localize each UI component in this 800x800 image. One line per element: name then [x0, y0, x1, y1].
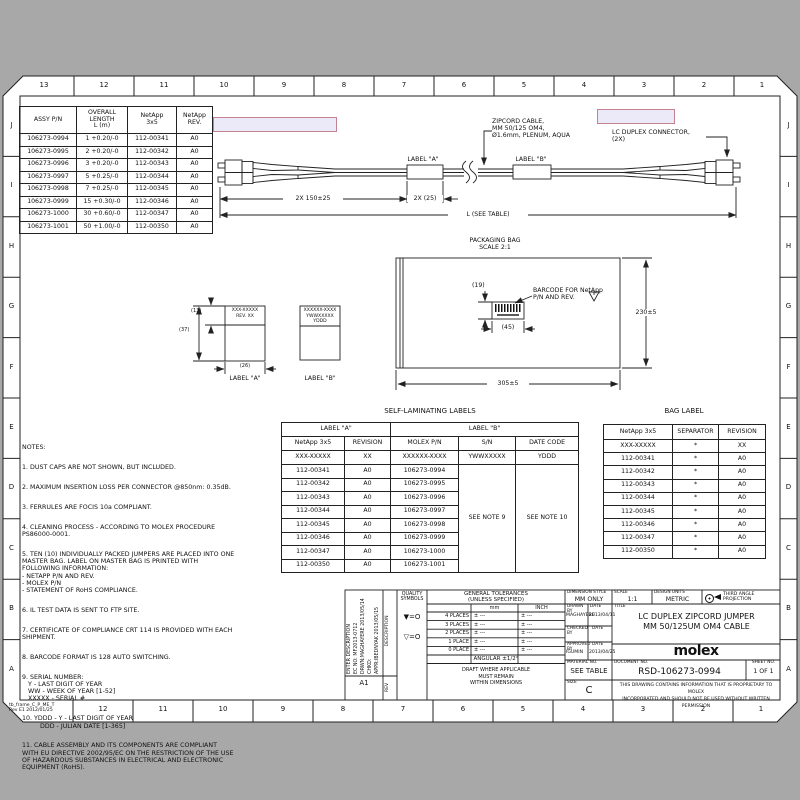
design-units-value: METRIC: [653, 596, 702, 603]
table-row: 112-00343*A0: [604, 479, 766, 492]
cell: 112-00343: [282, 492, 345, 506]
note-item: 7. CERTIFICATE OF COMPLIANCE CRT 114 IS …: [22, 627, 290, 641]
cell: 106273-1001: [391, 559, 459, 573]
table-row: 106273-09941 +0.20/-0112-00341A0: [20, 134, 213, 147]
label-a-caption: LABEL "A": [222, 375, 268, 382]
cell: 112-00342: [282, 478, 345, 492]
cell: A0: [719, 545, 766, 558]
cell: 112-00347: [604, 532, 673, 545]
border-row: I: [781, 156, 796, 216]
quality-symbols-label: QUALITY SYMBOLS: [397, 592, 427, 603]
table-row: 106273-09963 +0.20/-0112-00343A0: [20, 159, 213, 172]
notes-title: NOTES:: [22, 444, 290, 451]
assy-table: ASSY P/N OVERALL LENGTH L (m) NetApp 3x5…: [19, 106, 213, 234]
zipcord-cable-callout: ZIPCORD CABLE, MM 50/125 OM4, Ø1.6mm, PL…: [492, 118, 588, 139]
table-row: 112-00350*A0: [604, 545, 766, 558]
engineering-drawing-sheet: 13 12 11 10 9 8 7 6 5 4 3 2 1 12 11 10 9…: [0, 0, 800, 800]
group-header: LABEL "B": [391, 423, 579, 437]
table-row: 106273-09987 +0.25/-0112-00345A0: [20, 184, 213, 197]
cell: *: [673, 466, 719, 479]
border-row: E: [781, 398, 796, 458]
table-row: 106273-099915 +0.30/-0112-00346A0: [20, 196, 213, 209]
cell: A0: [177, 221, 213, 234]
molex-logo: molex: [612, 644, 780, 660]
tol-col-inch: INCH: [519, 606, 564, 612]
cell: A0: [345, 546, 391, 560]
cell: *: [673, 479, 719, 492]
table-row: 106273-09975 +0.25/-0112-00344A0: [20, 171, 213, 184]
col-header: ASSY P/N: [20, 107, 77, 134]
cell: 106273-1001: [20, 221, 77, 234]
table-row: 112-00347*A0: [604, 532, 766, 545]
title-label: TITLE: [614, 605, 644, 610]
tol-mm-value: ± ---: [474, 631, 517, 637]
border-row: I: [4, 156, 19, 216]
tol-mm-value: ± ---: [474, 614, 517, 620]
label-a-callout: LABEL "A": [400, 156, 446, 163]
cell: 5 +0.25/-0: [77, 171, 128, 184]
drawn-by-value: MAGHAYERE: [566, 613, 589, 618]
border-row: G: [4, 277, 19, 337]
cell: A0: [719, 466, 766, 479]
tol-inch-value: ± ---: [521, 614, 564, 620]
sheet-no-value: 1 OF 1: [747, 668, 780, 675]
table-row: 112-00346*A0: [604, 519, 766, 532]
table-row: 112-00341*A0: [604, 453, 766, 466]
border-col: 7: [373, 702, 433, 718]
quality-symbol-major: ▽=O: [397, 634, 427, 642]
cell: 112-00345: [128, 184, 177, 197]
approved-by-value: IGUMIN: [566, 650, 589, 655]
cell: 112-00345: [604, 505, 673, 518]
col-header: MOLEX P/N: [391, 437, 459, 451]
table-row: XXX-XXXXX*XX: [604, 440, 766, 453]
border-col: 1: [734, 78, 790, 94]
note-item: 10. YDDD - Y - LAST DIGIT OF YEAR DDD - …: [22, 715, 290, 729]
material-no-label: MATERIAL NO.: [567, 661, 611, 666]
col-header: REVISION: [345, 437, 391, 451]
label-b-content: XXXXXX-XXXX YWWXXXXX YDDD: [300, 308, 340, 325]
dim-barcode-width: (45): [495, 324, 521, 331]
table-row: 112-00342*A0: [604, 466, 766, 479]
cell: 106273-0999: [391, 532, 459, 546]
col-header: NetApp 3x5: [604, 425, 673, 440]
cell: A0: [177, 134, 213, 147]
cell: A0: [345, 519, 391, 533]
tol-mm-value: ± ---: [474, 623, 517, 629]
scale-value: 1:1: [613, 596, 652, 603]
border-row: B: [4, 579, 19, 639]
dim-13: (13): [191, 309, 209, 315]
border-row: E: [4, 398, 19, 458]
border-col: 6: [434, 78, 494, 94]
table-row: 106273-100030 +0.60/-0112-00347A0: [20, 209, 213, 222]
dim-37: (37): [179, 328, 197, 334]
tol-inch-value: ± ---: [521, 631, 564, 637]
note-item: 2. MAXIMUM INSERTION LOSS PER CONNECTOR …: [22, 484, 290, 491]
document-no-value: RSD-106273-0994: [613, 667, 746, 677]
cell: A0: [719, 532, 766, 545]
border-row: C: [781, 519, 796, 579]
cell: 106273-1000: [391, 546, 459, 560]
cell: 106273-0996: [391, 492, 459, 506]
cell: A0: [719, 492, 766, 505]
cell: 112-00343: [604, 479, 673, 492]
tolerances-title: GENERAL TOLERANCES (UNLESS SPECIFIED): [428, 591, 564, 604]
document-no-label: DOCUMENT NO.: [614, 661, 654, 666]
table-row: 106273-100150 +1.00/-0112-00350A0: [20, 221, 213, 234]
cell: A0: [177, 171, 213, 184]
dim-boot-length: 2X 150±25: [283, 195, 343, 202]
note-item: 8. BARCODE FORMAT IS 128 AUTO SWITCHING.: [22, 654, 290, 661]
cell: 112-00346: [128, 196, 177, 209]
border-col: 11: [134, 78, 194, 94]
tol-row-label: 0 PLACE: [427, 648, 469, 654]
border-col: 12: [74, 78, 134, 94]
cell: A0: [719, 453, 766, 466]
cell: 112-00342: [604, 466, 673, 479]
cell: 15 +0.30/-0: [77, 196, 128, 209]
cell: 106273-0994: [391, 465, 459, 479]
dimension-style-value: MM ONLY: [566, 596, 612, 603]
material-no-value: SEE TABLE: [566, 668, 612, 676]
tol-mm-value: ± ---: [474, 640, 517, 646]
cell: XXX-XXXXX: [282, 451, 345, 465]
border-row: B: [781, 579, 796, 639]
table-row: 112-00344*A0: [604, 492, 766, 505]
cell: 112-00341: [282, 465, 345, 479]
cell: 112-00342: [128, 146, 177, 159]
drawing-title: LC DUPLEX ZIPCORD JUMPER MM 50/125UM OM4…: [613, 612, 780, 632]
cell: YDDD: [516, 451, 579, 465]
cell: YWWXXXXX: [459, 451, 516, 465]
cell: 112-00350: [128, 221, 177, 234]
cell: XXXXXX-XXXX: [391, 451, 459, 465]
cell: A0: [177, 159, 213, 172]
col-header: REVISION: [719, 425, 766, 440]
cell: 112-00341: [604, 453, 673, 466]
col-header: OVERALL LENGTH L (m): [77, 107, 128, 134]
notes-block: NOTES: 1. DUST CAPS ARE NOT SHOWN, BUT I…: [22, 437, 290, 784]
table-row: 106273-09952 +0.20/-0112-00342A0: [20, 146, 213, 159]
highlight-annotation: [213, 117, 337, 132]
projection-cone-icon: [714, 594, 721, 600]
cell: 106273-0997: [391, 505, 459, 519]
note-item: 4. CLEANING PROCESS - ACCORDING TO MOLEX…: [22, 524, 290, 538]
tol-angular: ANGULAR ±1/2°: [428, 656, 564, 662]
flag-note-icon: V: [590, 292, 598, 297]
group-header: LABEL "A": [282, 423, 391, 437]
tol-draft-note: DRAFT WHERE APPLICABLE MUST REMAIN WITHI…: [428, 667, 564, 687]
dim-bag-width: 305±5: [487, 380, 529, 387]
col-header: NetApp 3x5: [128, 107, 177, 134]
cell: A0: [177, 184, 213, 197]
dim-barcode-height: (19): [472, 282, 494, 289]
cell: *: [673, 545, 719, 558]
sheet-no-label: SHEET NO.: [747, 661, 780, 666]
cell: 106273-0995: [20, 146, 77, 159]
cell: 112-00344: [282, 505, 345, 519]
border-row: J: [4, 96, 19, 156]
border-row: C: [4, 519, 19, 579]
cell: A0: [177, 196, 213, 209]
cell: A0: [345, 492, 391, 506]
tol-row-label: 2 PLACES: [427, 631, 469, 637]
border-col: 4: [554, 78, 614, 94]
cell: 106273-0995: [391, 478, 459, 492]
size-value: C: [566, 685, 612, 696]
col-header: NetApp REV.: [177, 107, 213, 134]
label-a-content: XXX-XXXXX REV. XX: [225, 308, 265, 320]
dim-26: (26): [228, 364, 262, 370]
cell: 50 +1.00/-0: [77, 221, 128, 234]
note-item: 1. DUST CAPS ARE NOT SHOWN, BUT INCLUDED…: [22, 464, 290, 471]
cell: 30 +0.60/-0: [77, 209, 128, 222]
cell: 112-00346: [282, 532, 345, 546]
col-header: NetApp 3x5: [282, 437, 345, 451]
date-label: DATE: [592, 627, 611, 632]
selflam-table: LABEL "A" LABEL "B" NetApp 3x5 REVISION …: [281, 422, 579, 573]
projection-label: THIRD ANGLE PROJECTION: [723, 592, 779, 603]
border-row: D: [4, 458, 19, 518]
border-row: F: [781, 338, 796, 398]
tol-col-mm: mm: [472, 606, 517, 612]
label-b-caption: LABEL "B": [297, 375, 343, 382]
border-col: 6: [433, 702, 493, 718]
label-b-callout: LABEL "B": [508, 156, 554, 163]
border-row: H: [781, 217, 796, 277]
cell: 106273-1000: [20, 209, 77, 222]
cell: A0: [345, 505, 391, 519]
border-row: J: [781, 96, 796, 156]
quality-symbol-critical: ▼=O: [397, 614, 427, 622]
cell: 112-00344: [604, 492, 673, 505]
cell: A0: [719, 479, 766, 492]
barcode: [495, 304, 521, 312]
rev-label: REV: [385, 678, 397, 697]
date-note-cell: SEE NOTE 10: [516, 465, 579, 573]
border-col: 3: [614, 78, 674, 94]
cell: 112-00350: [282, 559, 345, 573]
cell: 3 +0.20/-0: [77, 159, 128, 172]
cell: 112-00347: [282, 546, 345, 560]
cell: 106273-0998: [20, 184, 77, 197]
border-row: A: [4, 640, 19, 700]
cell: 112-00341: [128, 134, 177, 147]
dim-label-offset: 2X (25): [407, 195, 443, 202]
border-col: 13: [14, 78, 74, 94]
cell: *: [673, 440, 719, 453]
description-label: DESCRIPTION: [385, 592, 397, 670]
border-col: 2: [674, 78, 734, 94]
approved-date: 2013/04/25: [589, 650, 612, 655]
note-item: 5. TEN (10) INDIVIDUALLY PACKED JUMPERS …: [22, 551, 290, 594]
packaging-bag-title: PACKAGING BAG SCALE 2:1: [445, 237, 545, 251]
cell: 112-00344: [128, 171, 177, 184]
border-col: 5: [494, 78, 554, 94]
cell: *: [673, 453, 719, 466]
lc-connector-callout: LC DUPLEX CONNECTOR, (2X): [612, 129, 712, 143]
border-col: 9: [254, 78, 314, 94]
baglabel-title: BAG LABEL: [652, 408, 716, 416]
cell: 106273-0997: [20, 171, 77, 184]
border-col: 4: [553, 702, 613, 718]
cell: 1 +0.20/-0: [77, 134, 128, 147]
cell: 112-00347: [128, 209, 177, 222]
cell: *: [673, 519, 719, 532]
highlight-annotation: [597, 109, 675, 124]
cell: A0: [345, 532, 391, 546]
date-label: DATE: [592, 643, 611, 648]
border-col: 10: [194, 78, 254, 94]
revision-description: ENTER DESCRIPTION EC NO: MF2013-0712 DRW…: [346, 592, 382, 674]
tol-mm-value: ± ---: [474, 648, 517, 654]
note-item: 9. SERIAL NUMBER: Y - LAST DIGIT OF YEAR…: [22, 674, 290, 703]
dim-overall-length: L (SEE TABLE): [448, 211, 528, 218]
cell: 112-00345: [282, 519, 345, 533]
table-row: XXX-XXXXX XX XXXXXX-XXXX YWWXXXXX YDDD: [282, 451, 579, 465]
table-row: 112-00341 A0 106273-0994 SEE NOTE 9 SEE …: [282, 465, 579, 479]
border-row: H: [4, 217, 19, 277]
projection-circle-icon: [705, 594, 714, 603]
cell: 7 +0.25/-0: [77, 184, 128, 197]
border-row: F: [4, 338, 19, 398]
col-header: S/N: [459, 437, 516, 451]
cell: A0: [345, 478, 391, 492]
cell: XX: [719, 440, 766, 453]
drawn-date: 2013/04/11: [589, 613, 612, 618]
note-item: 3. FERRULES ARE FOCIS 10a COMPLIANT.: [22, 504, 290, 511]
cell: 106273-0999: [20, 196, 77, 209]
cell: 106273-0994: [20, 134, 77, 147]
revision-code: A1: [346, 680, 382, 688]
baglabel-table: NetApp 3x5 SEPARATOR REVISION XXX-XXXXX*…: [603, 424, 766, 559]
border-col: 8: [314, 78, 374, 94]
cell: A0: [177, 146, 213, 159]
checked-by-label: CHECKED BY: [567, 627, 591, 637]
border-col: 5: [493, 702, 553, 718]
cell: 112-00346: [604, 519, 673, 532]
col-header: DATE CODE: [516, 437, 579, 451]
cell: XX: [345, 451, 391, 465]
col-header: SEPARATOR: [673, 425, 719, 440]
cell: XXX-XXXXX: [604, 440, 673, 453]
tol-row-label: 1 PLACE: [427, 640, 469, 646]
barcode-callout: BARCODE FOR NetApp P/N AND REV.: [533, 287, 619, 301]
tol-row-label: 3 PLACES: [427, 623, 469, 629]
cell: *: [673, 505, 719, 518]
border-row: D: [781, 458, 796, 518]
cell: A0: [177, 209, 213, 222]
border-col: 7: [374, 78, 434, 94]
date-label: DATE: [590, 605, 611, 610]
sn-note-cell: SEE NOTE 9: [459, 465, 516, 573]
selflam-title: SELF-LAMINATING LABELS: [360, 408, 500, 416]
cell: A0: [345, 465, 391, 479]
border-col: 8: [313, 702, 373, 718]
border-row: A: [781, 640, 796, 700]
table-row: 112-00345*A0: [604, 505, 766, 518]
tol-inch-value: ± ---: [521, 640, 564, 646]
cell: *: [673, 532, 719, 545]
tol-row-label: 4 PLACES: [427, 614, 469, 620]
dim-bag-height: 230±5: [629, 309, 663, 316]
proprietary-notice: THIS DRAWING CONTAINS INFORMATION THAT I…: [612, 682, 780, 710]
cell: *: [673, 492, 719, 505]
border-row: G: [781, 277, 796, 337]
cell: 2 +0.20/-0: [77, 146, 128, 159]
note-item: 6. IL TEST DATA IS SENT TO FTP SITE.: [22, 607, 290, 614]
cell: A0: [719, 519, 766, 532]
cell: 106273-0996: [20, 159, 77, 172]
cell: 106273-0998: [391, 519, 459, 533]
cell: A0: [719, 505, 766, 518]
note-item: 11. CABLE ASSEMBLY AND ITS COMPONENTS AR…: [22, 742, 290, 771]
cell: 112-00350: [604, 545, 673, 558]
tol-inch-value: ± ---: [521, 648, 564, 654]
tol-inch-value: ± ---: [521, 623, 564, 629]
cell: 112-00343: [128, 159, 177, 172]
cell: A0: [345, 559, 391, 573]
